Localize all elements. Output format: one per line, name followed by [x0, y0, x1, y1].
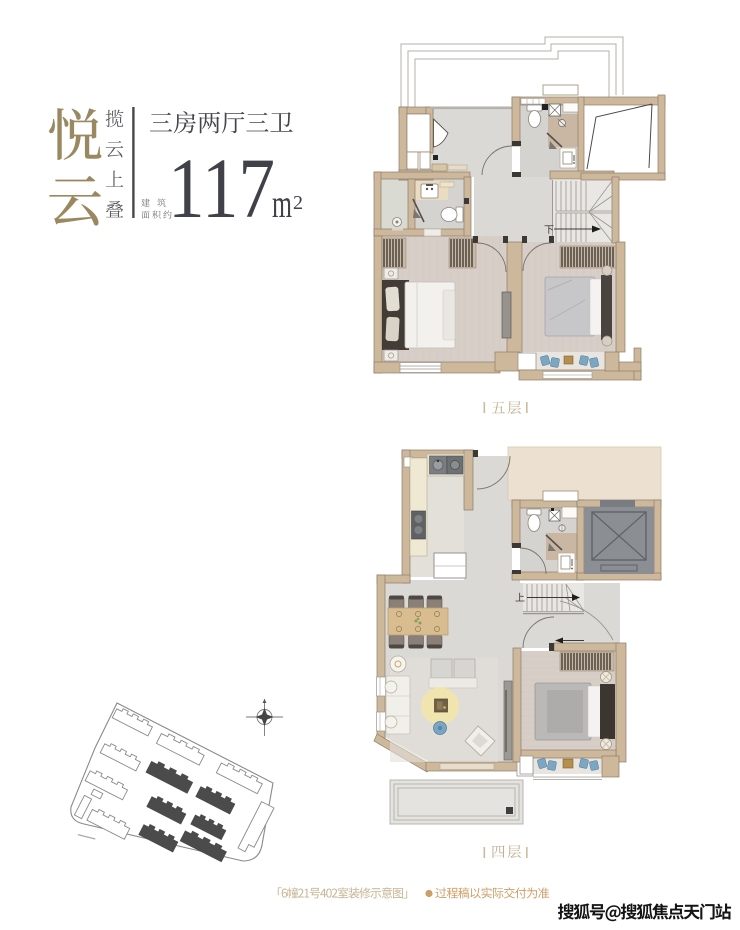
svg-text:2: 2 [293, 192, 303, 214]
svg-text:m: m [272, 181, 292, 226]
svg-text:117: 117 [168, 140, 275, 236]
